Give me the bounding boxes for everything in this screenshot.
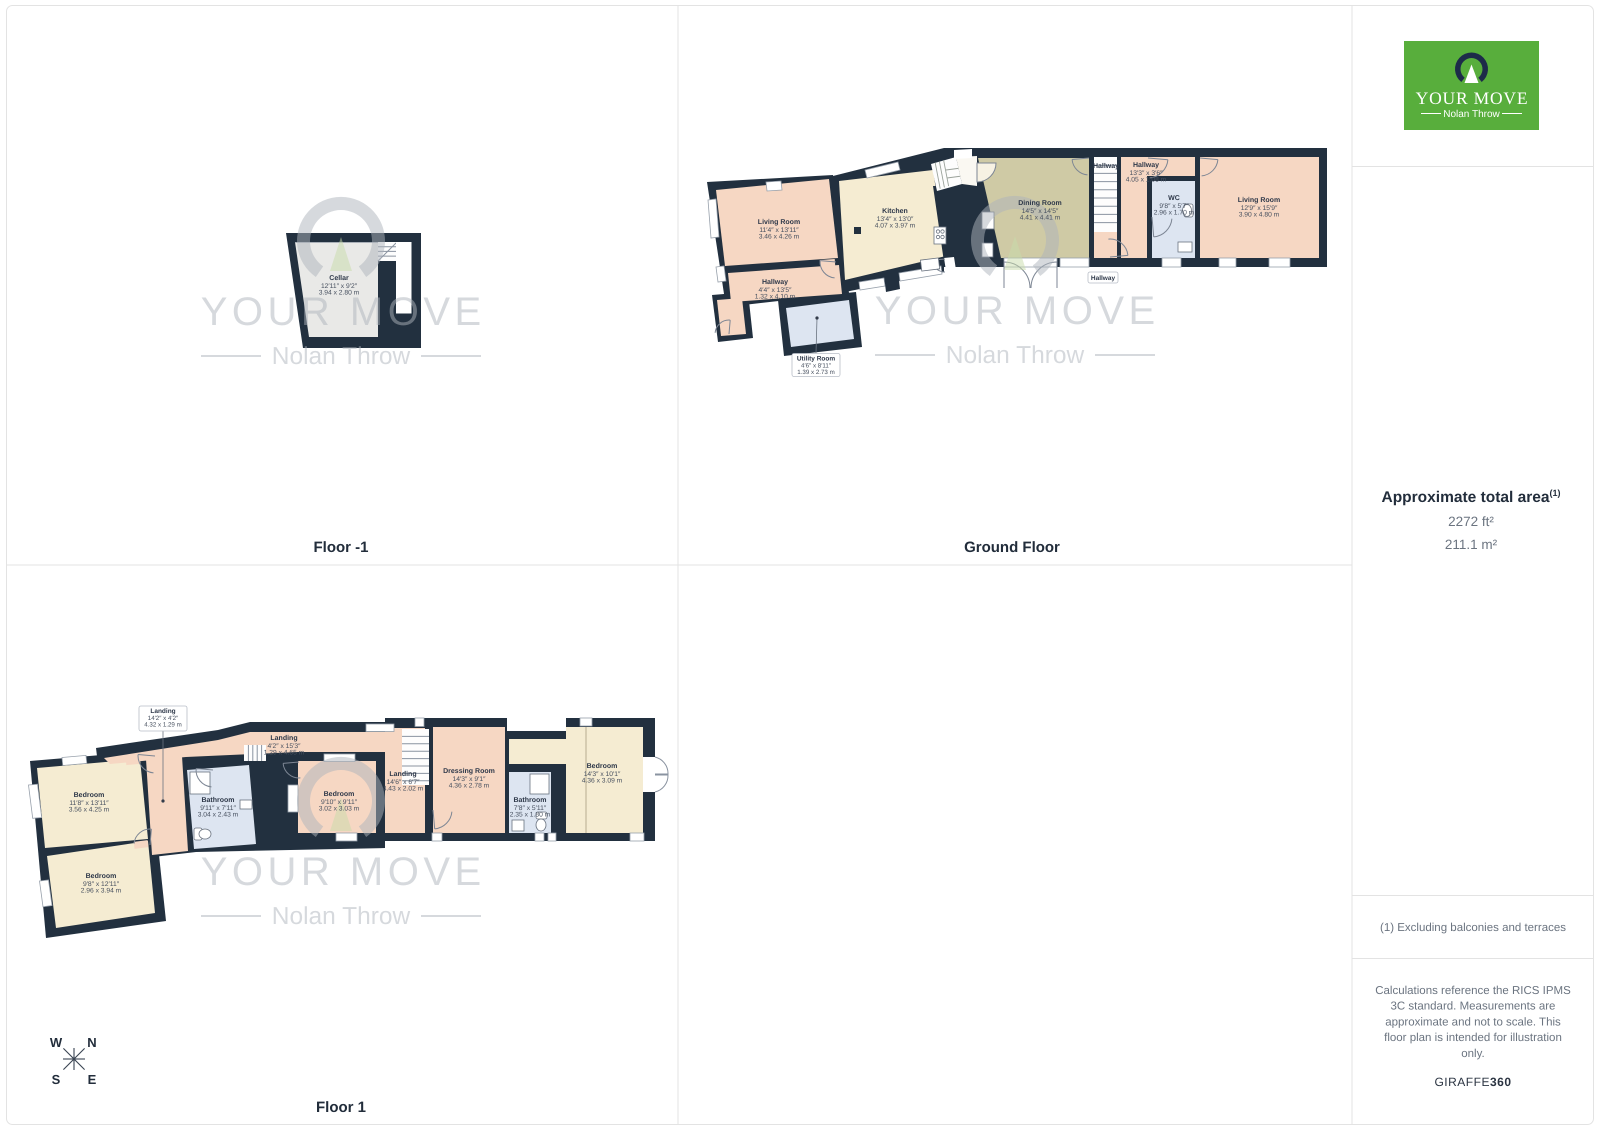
svg-text:Landing: Landing <box>150 708 175 715</box>
svg-text:211.1 m²: 211.1 m² <box>1445 537 1498 552</box>
svg-text:Kitchen: Kitchen <box>882 207 908 215</box>
svg-text:YOUR MOVE: YOUR MOVE <box>1416 88 1529 108</box>
svg-text:YOUR MOVE: YOUR MOVE <box>201 850 486 894</box>
svg-text:Nolan Throw: Nolan Throw <box>272 903 411 930</box>
svg-text:4.05 x 1.08 m: 4.05 x 1.08 m <box>1126 177 1167 184</box>
svg-text:Bedroom: Bedroom <box>74 791 105 799</box>
svg-text:Bedroom: Bedroom <box>324 790 355 798</box>
svg-text:2.96 x 3.94 m: 2.96 x 3.94 m <box>81 888 122 895</box>
svg-text:Nolan Throw: Nolan Throw <box>946 342 1085 369</box>
svg-text:W: W <box>50 1035 63 1050</box>
svg-text:3.46 x 4.26 m: 3.46 x 4.26 m <box>759 234 800 241</box>
svg-text:3.02 x 3.03 m: 3.02 x 3.03 m <box>319 806 360 813</box>
svg-text:N: N <box>87 1035 96 1050</box>
svg-text:S: S <box>52 1072 61 1087</box>
svg-text:3.04 x 2.43 m: 3.04 x 2.43 m <box>198 812 239 819</box>
svg-text:3.90 x 4.80 m: 3.90 x 4.80 m <box>1239 212 1280 219</box>
svg-text:Living Room: Living Room <box>758 218 800 226</box>
svg-text:Approximate total area(1): Approximate total area(1) <box>1382 488 1561 506</box>
svg-text:only.: only. <box>1461 1048 1484 1060</box>
svg-text:Utility Room: Utility Room <box>797 356 835 363</box>
svg-text:1.39 x 2.73 m: 1.39 x 2.73 m <box>797 369 835 376</box>
svg-text:floor plan is intended for ill: floor plan is intended for illustration <box>1384 1032 1562 1044</box>
svg-text:Bedroom: Bedroom <box>86 872 117 880</box>
svg-text:3C standard. Measurements are: 3C standard. Measurements are <box>1391 1001 1556 1013</box>
svg-text:Hallway: Hallway <box>1091 275 1116 282</box>
svg-text:Landing: Landing <box>389 770 416 778</box>
svg-text:Ground Floor: Ground Floor <box>964 539 1060 556</box>
svg-text:Nolan Throw: Nolan Throw <box>1443 109 1500 120</box>
svg-text:3.56 x 4.25 m: 3.56 x 4.25 m <box>69 807 110 814</box>
svg-text:Landing: Landing <box>270 734 297 742</box>
svg-text:approximate and not to scale.: approximate and not to scale. This <box>1385 1016 1561 1028</box>
svg-text:Dining Room: Dining Room <box>1018 199 1062 207</box>
svg-text:Cellar: Cellar <box>329 274 349 282</box>
svg-text:1.29 x 4.65 m: 1.29 x 4.65 m <box>264 750 305 757</box>
svg-text:YOUR MOVE: YOUR MOVE <box>201 290 486 334</box>
svg-text:WC: WC <box>1168 195 1180 202</box>
svg-text:4.32 x 1.29 m: 4.32 x 1.29 m <box>144 722 182 729</box>
svg-text:Hallway: Hallway <box>1093 162 1119 170</box>
svg-text:Hallway: Hallway <box>1133 161 1159 169</box>
svg-text:(1) Excluding balconies and te: (1) Excluding balconies and terraces <box>1380 922 1566 934</box>
svg-text:GIRAFFE360: GIRAFFE360 <box>1434 1075 1511 1089</box>
svg-text:Floor -1: Floor -1 <box>314 539 369 556</box>
svg-text:2.96 x 1.70 m: 2.96 x 1.70 m <box>1154 210 1195 217</box>
svg-text:Bathroom: Bathroom <box>513 796 546 804</box>
svg-text:Bedroom: Bedroom <box>587 762 618 770</box>
svg-text:YOUR MOVE: YOUR MOVE <box>875 289 1160 333</box>
svg-text:4.36 x 2.78 m: 4.36 x 2.78 m <box>449 783 490 790</box>
svg-text:4.43 x 2.02 m: 4.43 x 2.02 m <box>383 786 424 793</box>
svg-text:Living Room: Living Room <box>1238 196 1280 204</box>
svg-text:4.41 x 4.41 m: 4.41 x 4.41 m <box>1020 215 1061 222</box>
svg-text:3.94 x 2.80 m: 3.94 x 2.80 m <box>319 290 360 297</box>
svg-text:1.32 x 4.10 m: 1.32 x 4.10 m <box>755 294 796 301</box>
svg-text:E: E <box>88 1072 97 1087</box>
svg-text:Bathroom: Bathroom <box>201 796 234 804</box>
svg-text:2272 ft²: 2272 ft² <box>1448 514 1494 529</box>
svg-text:4.36 x 3.09 m: 4.36 x 3.09 m <box>582 778 623 785</box>
svg-text:4.07 x 3.97 m: 4.07 x 3.97 m <box>875 223 916 230</box>
svg-text:Dressing Room: Dressing Room <box>443 767 495 775</box>
svg-text:Floor 1: Floor 1 <box>316 1099 366 1116</box>
svg-text:Hallway: Hallway <box>762 278 788 286</box>
svg-text:2.35 x 1.80 m: 2.35 x 1.80 m <box>510 812 551 819</box>
svg-text:Calculations reference the RIC: Calculations reference the RICS IPMS <box>1375 985 1571 997</box>
svg-text:Nolan Throw: Nolan Throw <box>272 343 411 370</box>
